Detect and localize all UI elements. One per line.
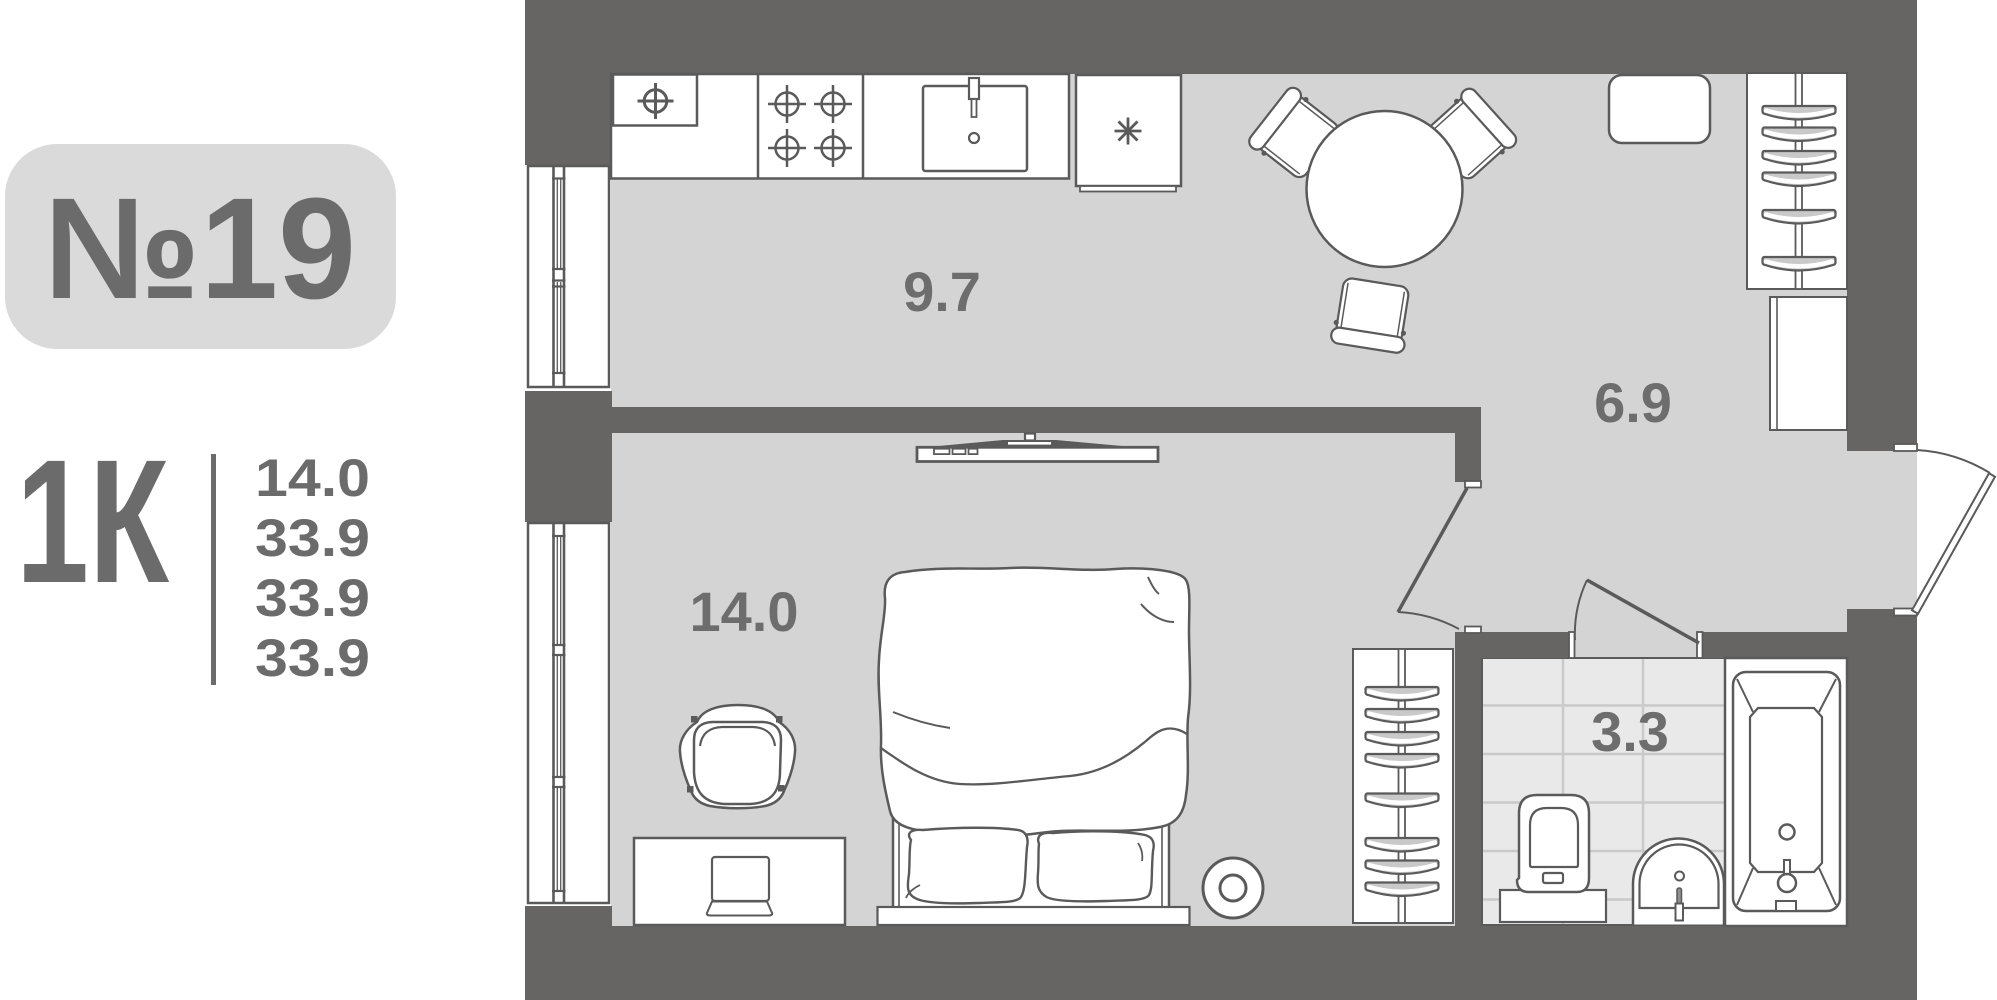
svg-text:№19: №19: [44, 168, 356, 329]
svg-text:33.9: 33.9: [255, 509, 370, 568]
svg-text:1К: 1К: [16, 424, 169, 620]
svg-text:3.3: 3.3: [1591, 700, 1669, 763]
svg-text:6.9: 6.9: [1594, 371, 1672, 434]
svg-text:14.0: 14.0: [690, 580, 799, 643]
svg-text:9.7: 9.7: [903, 260, 981, 323]
svg-text:33.9: 33.9: [255, 569, 370, 628]
svg-text:14.0: 14.0: [255, 449, 370, 508]
svg-text:33.9: 33.9: [255, 629, 370, 688]
